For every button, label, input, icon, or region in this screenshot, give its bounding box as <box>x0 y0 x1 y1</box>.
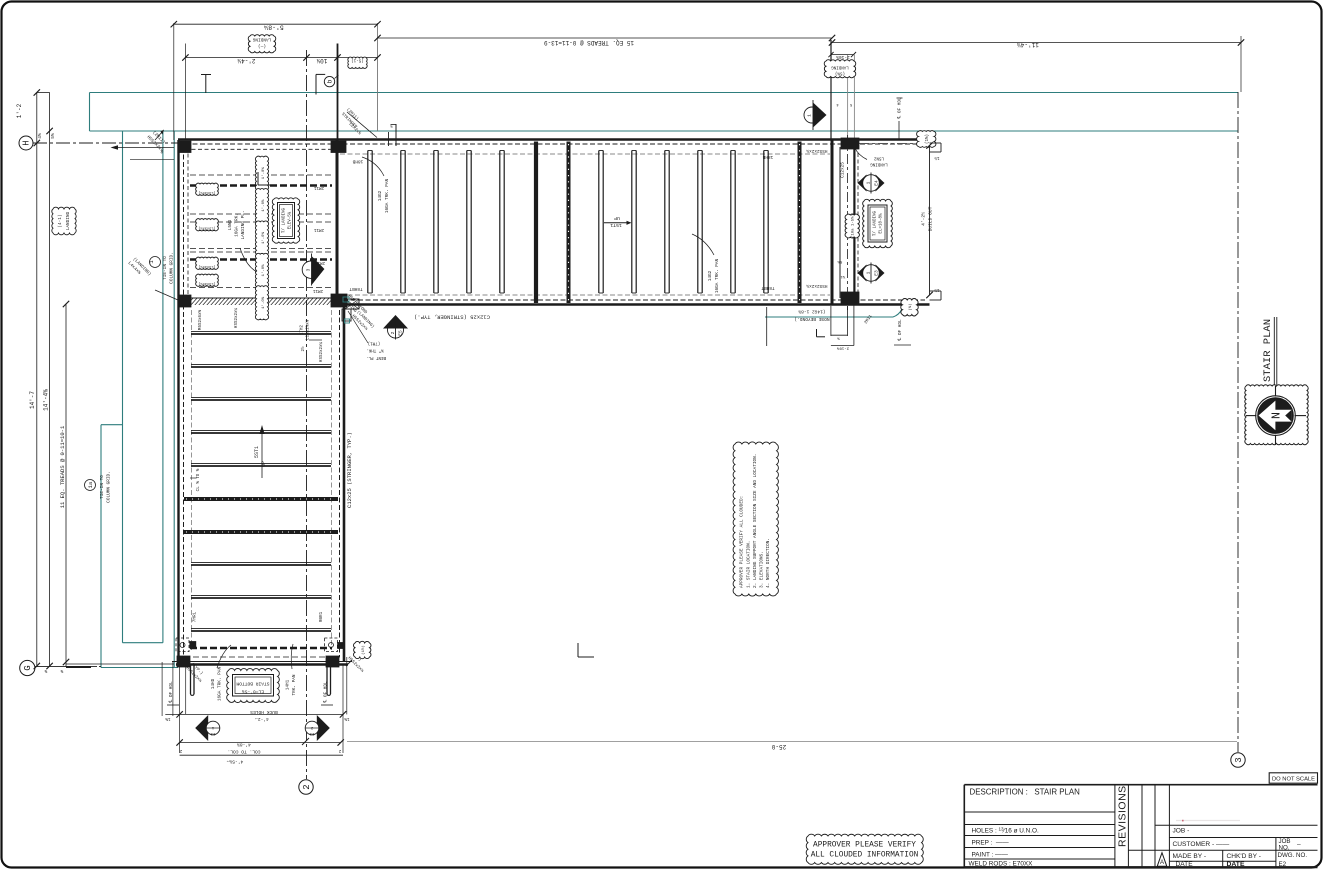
svg-text:STAIR PLAN: STAIR PLAN <box>1262 319 1274 382</box>
svg-text:9BR1: 9BR1 <box>319 611 324 622</box>
svg-text:T8HBT: T8HBT <box>761 285 775 290</box>
svg-text:4'-5¾→: 4'-5¾→ <box>226 759 243 765</box>
svg-text:2½: 2½ <box>301 346 306 352</box>
svg-text:(L3x3x¼): (L3x3x¼) <box>198 281 215 286</box>
svg-text:E2: E2 <box>1279 861 1287 868</box>
svg-text:CL ⅝ TO ⅝: CL ⅝ TO ⅝ <box>197 468 201 491</box>
svg-text:DESCRIPTION : STAIR PLAN: DESCRIPTION : STAIR PLAN <box>970 788 1081 797</box>
svg-text:15T1: 15T1 <box>610 222 622 228</box>
svg-text:N: N <box>1270 412 1283 419</box>
svg-text:T/ LANDING: T/ LANDING <box>282 207 287 233</box>
svg-text:2M11: 2M11 <box>314 260 325 264</box>
svg-text:5⅝: 5⅝ <box>837 259 842 263</box>
svg-text:A: A <box>1160 860 1164 866</box>
svg-text:DWG. NO.: DWG. NO. <box>1278 852 1308 859</box>
svg-text:2-10⅞: 2-10⅞ <box>836 346 849 350</box>
svg-text:T8HBT: T8HBT <box>349 286 363 291</box>
svg-text:11 EQ. TREADS @ 0-11=10-1: 11 EQ. TREADS @ 0-11=10-1 <box>59 425 66 508</box>
svg-text:E3: E3 <box>874 270 880 276</box>
svg-text:E4: E4 <box>874 180 880 186</box>
svg-text:(10a 1-5⅝): (10a 1-5⅝) <box>851 214 856 238</box>
svg-text:CUSTOMER - ——: CUSTOMER - —— <box>1173 841 1230 848</box>
svg-text:DATE: DATE <box>1176 861 1194 868</box>
svg-text:JOB -: JOB - <box>1173 828 1190 835</box>
svg-text:⅝: ⅝ <box>60 668 63 672</box>
svg-text:L5NG: L5NG <box>228 219 233 230</box>
svg-text:E5: E5 <box>816 116 822 122</box>
svg-text:T/ LANDING: T/ LANDING <box>873 210 878 236</box>
svg-text:HSS2x2x¼: HSS2x2x¼ <box>806 283 827 288</box>
svg-text:(14G2 1-8⅞: (14G2 1-8⅞ <box>798 309 825 315</box>
svg-text:COLUMN GRID.: COLUMN GRID. <box>107 471 112 503</box>
svg-text:REVISIONS: REVISIONS <box>1117 785 1129 847</box>
svg-text:1⅝: 1⅝ <box>344 716 350 720</box>
svg-text:2M11: 2M11 <box>312 288 323 292</box>
svg-text:C12x25 (STRINGER, TYP.): C12x25 (STRINGER, TYP.) <box>414 314 490 321</box>
svg-text:L5N2: L5N2 <box>873 156 884 160</box>
svg-text:LANDING: LANDING <box>252 37 271 42</box>
svg-text:NO.: NO. <box>1279 845 1290 852</box>
svg-text:(4-1): (4-1) <box>58 214 63 227</box>
svg-text:1: 1 <box>807 114 813 117</box>
svg-text:16GA TRK. PAN: 16GA TRK. PAN <box>715 259 720 294</box>
svg-text:1½: 1½ <box>934 155 940 160</box>
svg-text:4⅝: 4⅝ <box>37 133 43 139</box>
svg-text:℄ OF HDL: ℄ OF HDL <box>898 97 903 120</box>
svg-text:2: 2 <box>338 748 341 752</box>
svg-text:COLUMN GRID.: COLUMN GRID. <box>170 252 175 284</box>
svg-text:11'-4¼: 11'-4¼ <box>1017 41 1039 48</box>
svg-text:E6: E6 <box>315 271 321 277</box>
svg-text:(⅝): (⅝) <box>908 303 913 310</box>
svg-text:TIE-IN TO: TIE-IN TO <box>163 256 168 280</box>
svg-text:COL. TO COL.: COL. TO COL. <box>227 749 260 755</box>
svg-text:16GA TRK. PAN: 16GA TRK. PAN <box>218 667 223 702</box>
svg-text:BENT PL.: BENT PL. <box>366 355 386 359</box>
svg-text:NOSE BEYOND.): NOSE BEYOND.) <box>794 316 829 322</box>
svg-text:UP: UP <box>261 461 267 467</box>
svg-text:1½: 1½ <box>934 287 940 292</box>
svg-text:L1⅞x1⅞x⅛: L1⅞x1⅞x⅛ <box>306 319 311 340</box>
svg-text:LANDING: LANDING <box>831 65 849 69</box>
svg-text:TIE-IN TO: TIE-IN TO <box>100 475 105 499</box>
svg-text:LANDING PL.: LANDING PL. <box>241 211 246 240</box>
svg-text:5ST1: 5ST1 <box>254 446 260 458</box>
svg-text:℄ OF HDL: ℄ OF HDL <box>898 319 903 342</box>
svg-text:5'-8¼: 5'-8¼ <box>264 24 284 31</box>
svg-text:⅞1: ⅞1 <box>840 274 845 278</box>
svg-text:1'-2: 1'-2 <box>16 103 23 118</box>
svg-text:1'-0⅝: 1'-0⅝ <box>261 231 266 244</box>
svg-text:℄ OF HDL: ℄ OF HDL <box>169 681 174 704</box>
svg-text:G: G <box>23 665 33 670</box>
svg-text:(7M1): (7M1) <box>368 341 381 346</box>
svg-text:7HRL: 7HRL <box>193 611 198 622</box>
svg-text:EL=0'-5¾: EL=0'-5¾ <box>242 689 264 695</box>
svg-text:⅝: ⅝ <box>837 336 840 340</box>
svg-text:PREP : ——: PREP : —— <box>972 839 1010 846</box>
svg-text:ELEV-5¾: ELEV-5¾ <box>288 211 293 229</box>
svg-text:4'-2→: 4'-2→ <box>255 716 269 722</box>
svg-text:(1⅝): (1⅝) <box>925 134 930 144</box>
svg-text:10¼: 10¼ <box>316 57 327 64</box>
svg-text:(L3x3x¼): (L3x3x¼) <box>198 190 215 195</box>
svg-text:TRK. PAN: TRK. PAN <box>292 674 297 695</box>
svg-text:UP: UP <box>614 215 620 221</box>
svg-text:(L3x3x¼): (L3x3x¼) <box>198 226 215 231</box>
svg-text:BUCK HOLES: BUCK HOLES <box>250 709 278 715</box>
svg-text:4'-2½: 4'-2½ <box>921 212 927 226</box>
svg-text:MADE BY -: MADE BY - <box>1173 853 1207 860</box>
svg-text:14G2: 14G2 <box>708 270 713 281</box>
svg-text:HSS2x2x¼: HSS2x2x¼ <box>319 341 324 362</box>
svg-text:4. NORTH DIRECTION.: 4. NORTH DIRECTION. <box>766 538 771 588</box>
svg-text:3: 3 <box>1234 757 1244 762</box>
svg-text:2: 2 <box>302 784 312 789</box>
svg-text:1'-0⅝: 1'-0⅝ <box>261 264 266 277</box>
svg-text:HSS2x2x¼: HSS2x2x¼ <box>234 307 239 328</box>
svg-text:ALL CLOUDED INFORMATION: ALL CLOUDED INFORMATION <box>811 851 919 859</box>
svg-text:2'-4¼: 2'-4¼ <box>237 57 255 64</box>
svg-text:15 EQ. TREADS @ 0-11=13-9: 15 EQ. TREADS @ 0-11=13-9 <box>544 39 634 46</box>
svg-text:5: 5 <box>849 102 852 106</box>
svg-text:(1½): (1½) <box>361 645 366 655</box>
svg-text:APPROVER PLEASE VERIFY ALL CLO: APPROVER PLEASE VERIFY ALL CLOUDED: <box>740 496 745 588</box>
svg-text:℄ OF HDL: ℄ OF HDL <box>324 681 329 704</box>
svg-text:18HB: 18HB <box>352 159 363 164</box>
svg-text:14HD: 14HD <box>211 678 216 689</box>
svg-text:¾: ¾ <box>390 124 393 129</box>
svg-text:DO NOT SCALE: DO NOT SCALE <box>1272 776 1315 782</box>
svg-text:1: 1 <box>148 260 155 264</box>
svg-text:16GA TRK.: 16GA TRK. <box>235 213 240 237</box>
svg-text:1'-0⅝: 1'-0⅝ <box>261 296 266 309</box>
svg-text:EL=10-8¾: EL=10-8¾ <box>879 213 884 234</box>
svg-text:14'-4⅝: 14'-4⅝ <box>43 389 50 411</box>
svg-text:1TH2: 1TH2 <box>301 324 305 335</box>
svg-text:14'-7: 14'-7 <box>29 391 36 409</box>
svg-text:C12x25 (STRINGER, TYP.): C12x25 (STRINGER, TYP.) <box>346 432 353 508</box>
svg-text:(L3x3x¼): (L3x3x¼) <box>198 264 215 269</box>
svg-text:2M11: 2M11 <box>313 227 324 231</box>
svg-text:(5⅝): (5⅝) <box>835 71 845 76</box>
svg-text:16GA TRK. PAN: 16GA TRK. PAN <box>385 179 390 214</box>
svg-text:WELD RODS : E70XX: WELD RODS : E70XX <box>969 861 1034 868</box>
svg-text:E5: E5 <box>398 330 404 336</box>
svg-text:CHK'D BY -: CHK'D BY - <box>1227 853 1261 860</box>
svg-text:STAIR BOTTOM: STAIR BOTTOM <box>236 681 269 687</box>
svg-text:1⅝: 1⅝ <box>165 716 171 720</box>
svg-text:(5-1): (5-1) <box>351 58 364 63</box>
svg-text:14G2: 14G2 <box>378 190 383 201</box>
svg-text:4'-8⅞: 4'-8⅞ <box>237 742 251 748</box>
svg-text:3: 3 <box>306 268 312 271</box>
svg-text:2M11: 2M11 <box>864 314 873 325</box>
svg-text:5⅝: 5⅝ <box>50 133 56 139</box>
svg-text:H: H <box>22 140 32 145</box>
svg-text:18HB: 18HB <box>762 154 773 159</box>
svg-text:PAINT : ——: PAINT : —— <box>972 851 1009 858</box>
svg-text:3. ELEVATIONS.: 3. ELEVATIONS. <box>760 551 765 588</box>
svg-text:4: 4 <box>836 102 839 106</box>
svg-text:14H1: 14H1 <box>286 679 291 690</box>
svg-text:LANDING: LANDING <box>870 162 888 166</box>
svg-text:1'-0⅝: 1'-0⅝ <box>261 199 266 212</box>
svg-text:1: 1 <box>866 181 872 184</box>
svg-text:1'-0⅝: 1'-0⅝ <box>261 167 266 180</box>
svg-text:(—): (—) <box>258 43 266 48</box>
svg-text:C12x25: C12x25 <box>841 162 846 178</box>
svg-text:LANDING: LANDING <box>66 211 71 230</box>
svg-text:25-0: 25-0 <box>771 743 786 750</box>
svg-text:HOLES : 13⁄16 ø U.N.O.: HOLES : 13⁄16 ø U.N.O. <box>972 826 1040 834</box>
svg-text:1: 1 <box>866 271 872 274</box>
svg-text:M5S2x6x⅝: M5S2x6x⅝ <box>199 309 203 330</box>
svg-text:1. STAIR LOCATION.: 1. STAIR LOCATION. <box>747 541 752 588</box>
svg-text:b: b <box>327 80 334 84</box>
svg-text:⅝: ⅝ <box>44 668 47 672</box>
svg-text:1a: 1a <box>87 481 94 488</box>
svg-text:BUILD OUT: BUILD OUT <box>928 206 934 231</box>
svg-text:E3: E3 <box>210 731 215 735</box>
svg-text:–: – <box>1297 842 1301 849</box>
svg-text:DATE: DATE <box>1227 861 1245 868</box>
svg-text:2: 2 <box>390 331 396 334</box>
svg-text:E3: E3 <box>309 731 314 735</box>
svg-text:⅜” THK.: ⅜” THK. <box>366 348 384 353</box>
svg-text:2. LANDING SUPPORT ANGLE SECT: 2. LANDING SUPPORT ANGLE SECTION SIZE AN… <box>753 454 758 588</box>
svg-text:HSS2x2x¼: HSS2x2x¼ <box>806 148 827 153</box>
svg-text:APPROVER PLEASE VERIFY: APPROVER PLEASE VERIFY <box>813 842 916 850</box>
svg-text:2M11: 2M11 <box>313 185 324 189</box>
